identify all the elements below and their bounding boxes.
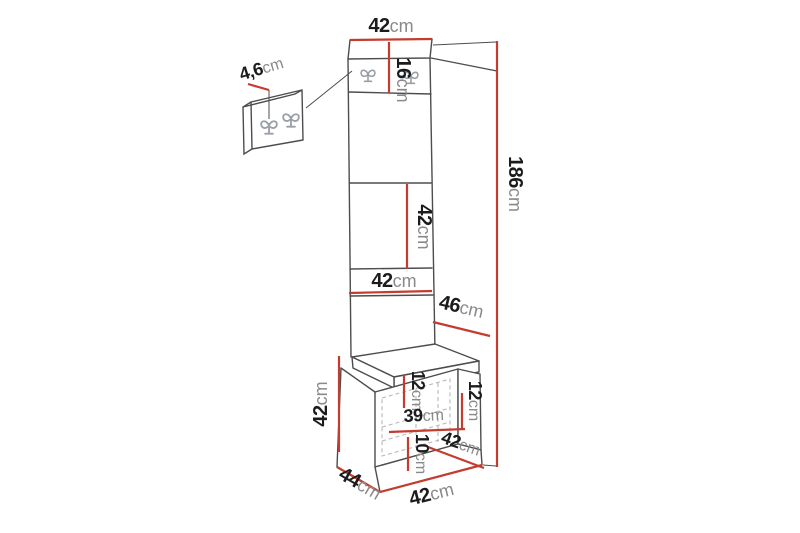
panel-divider-lower <box>350 268 432 269</box>
column-bottom-extension-line <box>483 465 496 466</box>
dim-label-total-height: 186cm <box>504 156 526 212</box>
furniture-dimension-diagram: 42cm 16cm 4,6cm 186cm 42cm 42cm 46cm 42c… <box>0 0 800 533</box>
dim-label-inner-top-right: 12cm <box>465 381 485 421</box>
dim-label-bench-height: 42cm <box>310 381 332 426</box>
dim-label-panel-thickness: 4,6cm <box>237 52 286 84</box>
diagram-canvas: 42cm 16cm 4,6cm 186cm 42cm 42cm 46cm 42c… <box>0 0 800 533</box>
dim-label-upper-side-depth: 46cm <box>437 291 486 323</box>
dim-label-lower-panel-width: 42cm <box>371 270 416 292</box>
coat-hook-icon <box>361 70 375 81</box>
detail-callout-line <box>306 71 352 108</box>
dim-line-panel-thickness <box>248 84 269 90</box>
dim-label-hook-strip-height: 16cm <box>392 57 414 102</box>
dim-label-inner-width: 39cm <box>403 404 444 426</box>
hook-panel-detail <box>243 71 352 154</box>
dim-label-inner-bottom: 10cm <box>412 434 432 474</box>
panel-divider-bottom <box>350 295 433 296</box>
dim-line-upper-side-depth <box>433 322 490 336</box>
column-left-edge <box>348 59 351 357</box>
dim-label-top-width: 42cm <box>368 15 413 37</box>
column-top-extension-line <box>433 42 496 45</box>
dim-line-top-width <box>350 39 432 40</box>
column-side-top-edge <box>431 58 497 71</box>
dim-label-middle-panel-height: 42cm <box>413 204 435 249</box>
